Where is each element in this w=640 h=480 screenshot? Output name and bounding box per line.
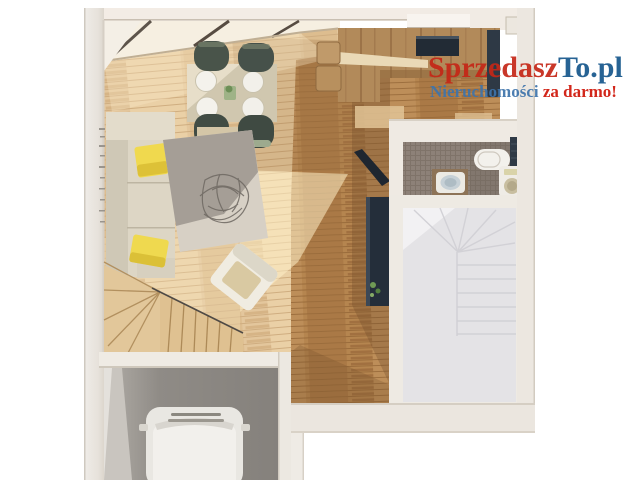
svg-text:SprzedaszTo.pl: SprzedaszTo.pl: [428, 51, 623, 84]
svg-text:Nieruchomości za darmo!: Nieruchomości za darmo!: [430, 82, 617, 101]
